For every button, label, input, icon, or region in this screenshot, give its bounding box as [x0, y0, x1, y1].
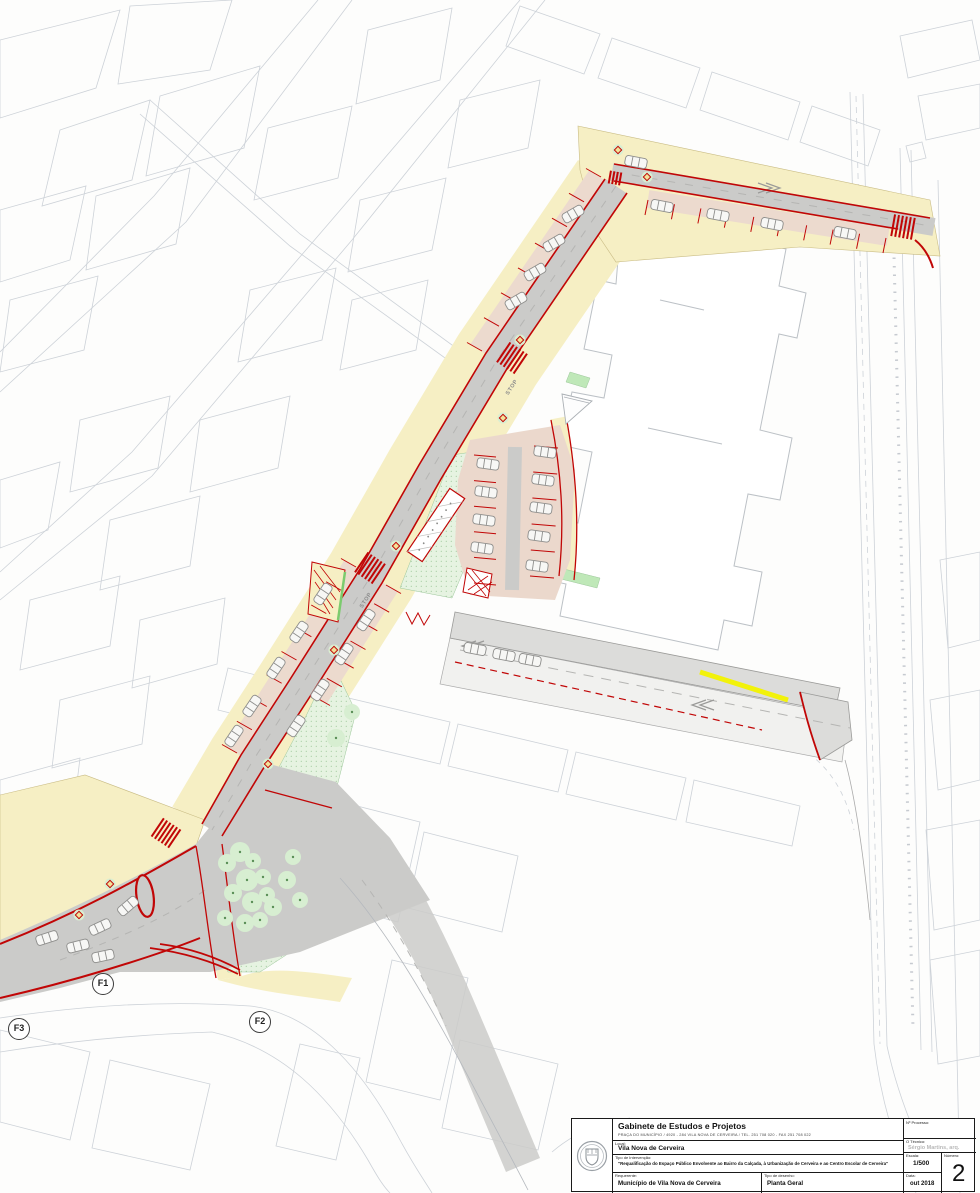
office-name: Gabinete de Estudos e Projetos [618, 1122, 746, 1131]
data-label: Data: [906, 1174, 916, 1178]
requerente-label: Requerente: [615, 1174, 637, 1178]
plan-sheet: STOPSTOP Gabinete de Estudos e Projetos … [0, 0, 980, 1193]
tree-icon [105, 879, 116, 890]
photo-marker-f2: F2 [249, 1011, 271, 1033]
photo-marker-f3: F3 [8, 1018, 30, 1040]
escala-value: 1/500 [913, 1161, 929, 1168]
drawing-type-value: Planta Geral [767, 1181, 803, 1188]
numero-label: Número: [944, 1154, 959, 1158]
tree-icon [263, 759, 274, 770]
drawing-type-label: Tipo de desenho: [764, 1174, 795, 1178]
tree-icon [329, 645, 340, 656]
title-block: Gabinete de Estudos e Projetos PRAÇA DO … [571, 1118, 975, 1192]
tecnico-value: Sérgio Martins, arq. [908, 1146, 959, 1152]
tecnico-label: O Técnico: [906, 1140, 925, 1144]
tree-icon [498, 413, 509, 424]
municipal-crest [575, 1136, 609, 1176]
office-address: PRAÇA DO MUNICÍPIO / 4920 - 284 VILA NOV… [618, 1133, 811, 1137]
tree-icon [74, 910, 85, 921]
numero-value: 2 [952, 1161, 965, 1186]
escala-label: Escala: [906, 1154, 919, 1158]
background-cadastre [0, 0, 980, 1193]
photo-marker-f1: F1 [92, 973, 114, 995]
requerente-value: Município de Vila Nova de Cerveira [618, 1181, 721, 1188]
intervention-label: Tipo de Intervenção: [615, 1156, 651, 1160]
processo-label: Nº Processo: [906, 1121, 929, 1125]
site-plan-drawing: STOPSTOP [0, 0, 980, 1193]
data-value: out 2018 [910, 1181, 934, 1187]
tree-icon [515, 335, 526, 346]
local-value: Vila Nova de Cerveira [618, 1146, 684, 1153]
tree-icon [613, 145, 624, 156]
tree-icon [642, 172, 653, 183]
intervention-value: "Requalificação do Espaço Público Envolv… [618, 1162, 904, 1167]
tree-icon [391, 541, 402, 552]
